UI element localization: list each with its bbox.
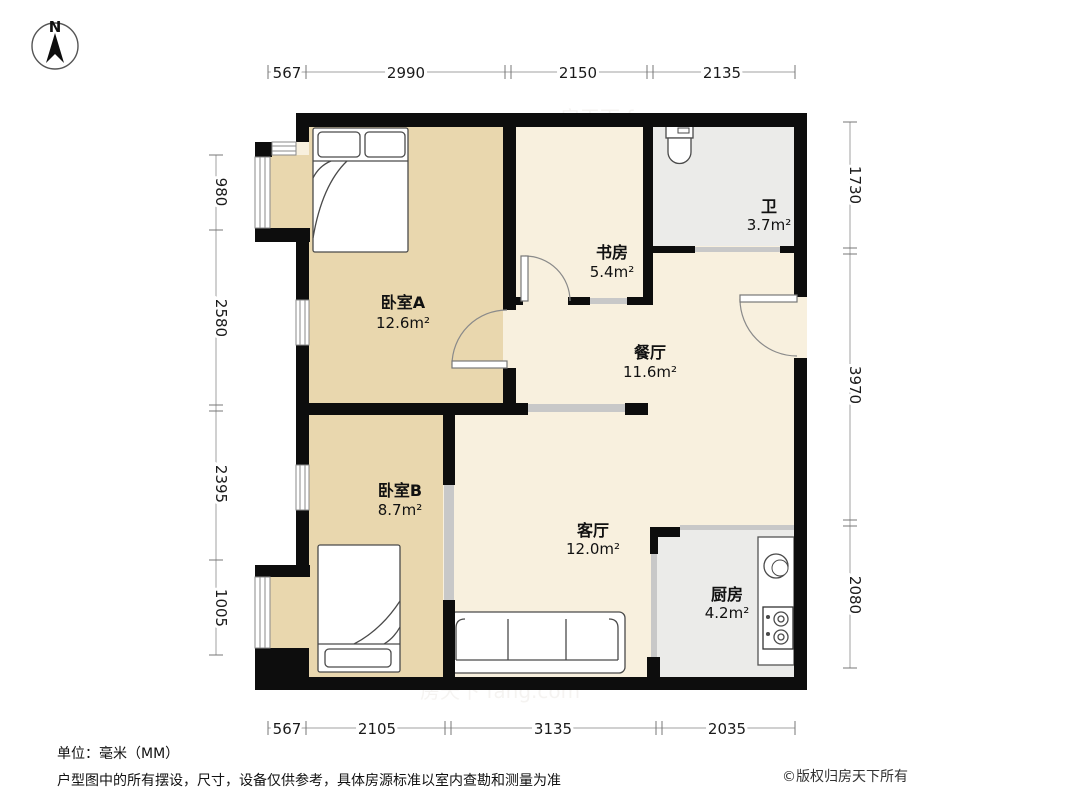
svg-text:2135: 2135: [703, 64, 741, 82]
bedroom-b-sliding-door: [444, 485, 454, 600]
svg-text:卧室B: 卧室B: [378, 481, 422, 500]
unit-note: 单位：毫米（MM）: [57, 745, 179, 762]
svg-text:客厅: 客厅: [577, 521, 609, 540]
svg-text:567: 567: [273, 720, 302, 738]
wall-right-lower: [794, 358, 807, 690]
svg-text:2105: 2105: [358, 720, 396, 738]
svg-text:567: 567: [273, 64, 302, 82]
dining-living-opening: [528, 404, 625, 412]
svg-text:书房: 书房: [596, 243, 628, 262]
copyright: ©版权归房天下所有: [782, 768, 908, 785]
bedroom-a-bay-floor: [270, 155, 309, 228]
bathroom-sliding-door: [695, 247, 780, 252]
disclaimer: 户型图中的所有摆设，尺寸，设备仅供参考，具体房源标准以室内查勘和测量为准: [57, 772, 561, 789]
room-label-kitchen: 厨房 4.2m²: [705, 585, 749, 622]
single-bed-icon: [318, 545, 400, 672]
svg-text:3.7m²: 3.7m²: [747, 216, 791, 234]
wall-bottom: [296, 677, 807, 690]
compass-north-label: N: [49, 18, 62, 36]
dim-top: 567 2990 2150 2135: [268, 64, 795, 82]
compass: N: [32, 18, 78, 69]
svg-text:3135: 3135: [534, 720, 572, 738]
dim-bottom: 567 2105 3135 2035: [268, 720, 795, 738]
floor-plan-canvas: N 房天下 fang.com 房天下 fang.com 房天下 fang.com: [0, 0, 1066, 800]
wall-right-upper: [794, 113, 807, 297]
svg-text:3970: 3970: [846, 366, 864, 404]
floor-plan-page: N 房天下 fang.com 房天下 fang.com 房天下 fang.com: [0, 0, 1066, 800]
kitchen-top-sliding-door: [680, 525, 794, 530]
window-bedroom-a-left: [296, 300, 309, 345]
north-arrow-icon: [46, 33, 64, 63]
svg-text:12.0m²: 12.0m²: [566, 540, 620, 558]
svg-text:2150: 2150: [559, 64, 597, 82]
svg-text:2080: 2080: [846, 576, 864, 614]
kitchen-counter: [758, 537, 794, 665]
svg-text:2990: 2990: [387, 64, 425, 82]
study-window-sill: [590, 298, 627, 304]
kitchen-side-sliding-door: [651, 554, 657, 657]
dim-left: 980 2580 2395 1005: [209, 155, 230, 655]
dim-right: 1730 3970 2080: [843, 122, 864, 668]
svg-text:4.2m²: 4.2m²: [705, 604, 749, 622]
svg-text:11.6m²: 11.6m²: [623, 363, 677, 381]
svg-text:1730: 1730: [846, 166, 864, 204]
svg-text:8.7m²: 8.7m²: [378, 501, 422, 519]
svg-text:卫: 卫: [761, 197, 777, 216]
footer: 单位：毫米（MM） 户型图中的所有摆设，尺寸，设备仅供参考，具体房源标准以室内查…: [57, 745, 908, 789]
window-bedroom-b-left: [296, 465, 309, 510]
bay-window-bottom-left: [255, 577, 270, 648]
svg-text:12.6m²: 12.6m²: [376, 314, 430, 332]
toilet-icon: [666, 124, 693, 164]
wall-top: [296, 113, 807, 127]
svg-text:980: 980: [212, 178, 230, 207]
svg-text:1005: 1005: [212, 589, 230, 627]
svg-text:卧室A: 卧室A: [381, 293, 426, 312]
svg-text:2580: 2580: [212, 299, 230, 337]
double-bed-icon: [313, 128, 408, 252]
svg-text:餐厅: 餐厅: [633, 343, 666, 362]
svg-text:5.4m²: 5.4m²: [590, 263, 634, 281]
svg-text:厨房: 厨房: [711, 585, 743, 604]
svg-text:2035: 2035: [708, 720, 746, 738]
stove-icon: [763, 607, 793, 649]
svg-text:2395: 2395: [212, 465, 230, 503]
sofa-icon: [450, 612, 625, 673]
bedroom-b-bay-floor: [270, 577, 309, 648]
